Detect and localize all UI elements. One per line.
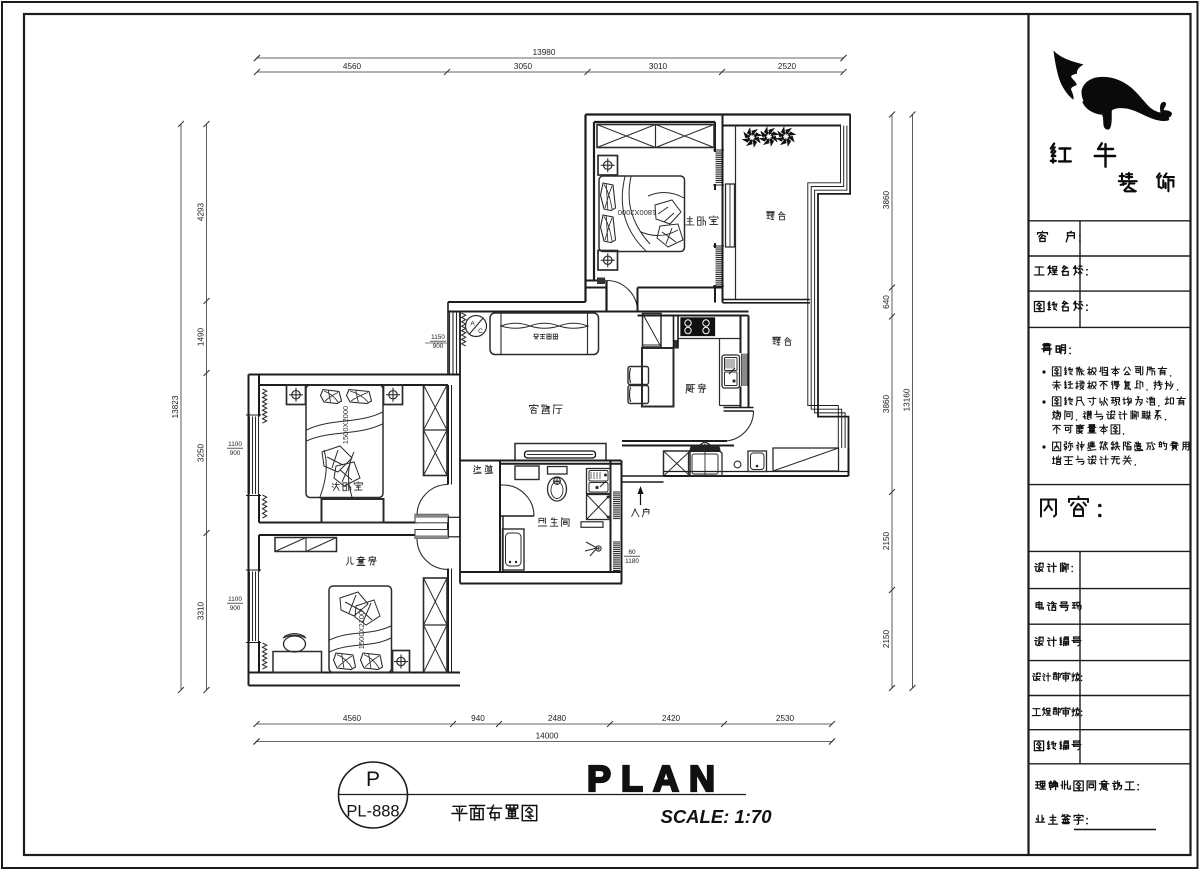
svg-text:1800X2000: 1800X2000	[618, 208, 656, 217]
svg-text:PL-888: PL-888	[346, 803, 399, 821]
svg-text:A: A	[470, 321, 475, 328]
svg-text:3250: 3250	[197, 443, 206, 462]
svg-text:940: 940	[471, 714, 485, 723]
svg-text:2530: 2530	[776, 714, 795, 723]
svg-text:3050: 3050	[514, 62, 533, 71]
svg-text:640: 640	[882, 295, 891, 309]
svg-text:2420: 2420	[662, 714, 681, 723]
svg-text:3860: 3860	[882, 190, 891, 209]
svg-text:3860: 3860	[882, 394, 891, 413]
svg-text:2150: 2150	[882, 629, 891, 648]
svg-text:1500X2000: 1500X2000	[341, 406, 350, 444]
svg-text:4560: 4560	[343, 714, 362, 723]
svg-text:4293: 4293	[197, 202, 206, 221]
svg-text:14000: 14000	[536, 732, 559, 741]
svg-text:1100: 1100	[228, 596, 242, 603]
svg-text:1100: 1100	[228, 441, 242, 448]
svg-text:13823: 13823	[171, 395, 180, 418]
svg-text:2150: 2150	[882, 531, 891, 550]
svg-text:13160: 13160	[903, 388, 912, 411]
svg-text:1150: 1150	[431, 334, 445, 341]
svg-text:2520: 2520	[778, 62, 797, 71]
svg-text:1490: 1490	[197, 327, 206, 346]
svg-text:SCALE: 1:70: SCALE: 1:70	[660, 806, 772, 827]
svg-text:3010: 3010	[649, 62, 668, 71]
svg-text:2480: 2480	[548, 714, 567, 723]
svg-text:1500X2100: 1500X2100	[357, 611, 366, 649]
svg-text:60: 60	[628, 549, 636, 556]
svg-text:4560: 4560	[343, 62, 362, 71]
svg-text:900: 900	[230, 450, 241, 457]
svg-text:P: P	[366, 768, 380, 791]
svg-text:PLAN: PLAN	[587, 758, 725, 799]
svg-text:C: C	[478, 328, 483, 335]
svg-text:13980: 13980	[533, 48, 556, 57]
svg-text:900: 900	[230, 605, 241, 612]
svg-text:900: 900	[433, 343, 444, 350]
svg-text:1180: 1180	[625, 558, 639, 565]
svg-text:3310: 3310	[197, 601, 206, 620]
